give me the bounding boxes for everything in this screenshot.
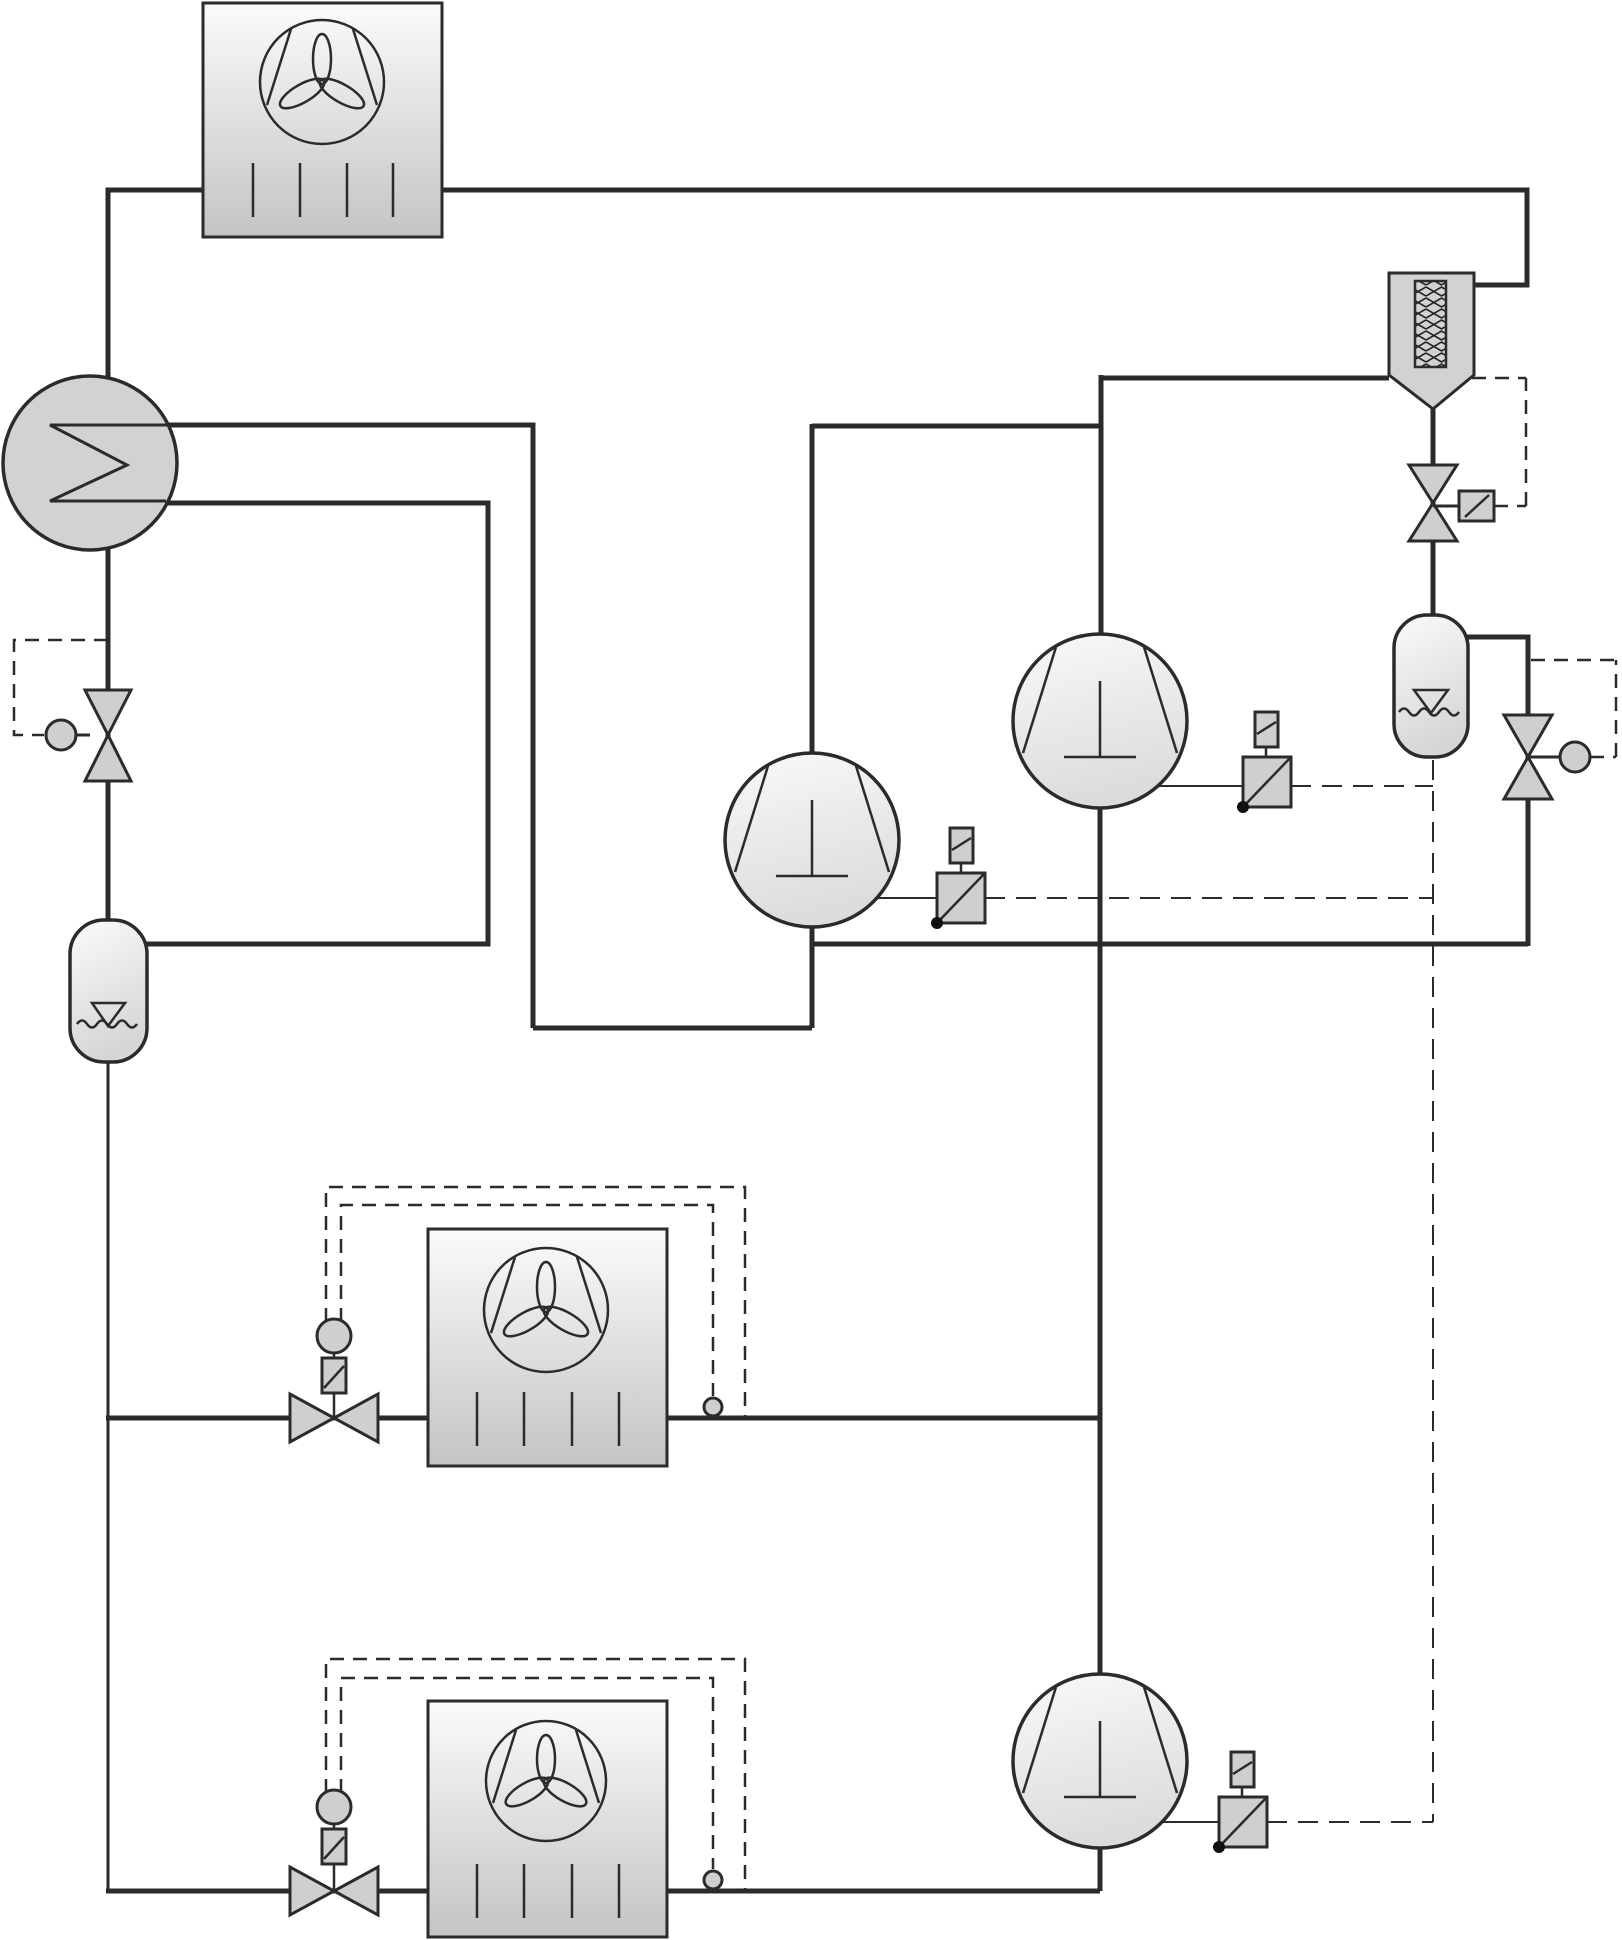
valve-body-bottom — [1409, 503, 1457, 541]
condenser-housing — [203, 3, 442, 237]
regulator-pilot — [1231, 1752, 1254, 1787]
valve-bulb-icon — [1560, 742, 1590, 772]
receiver-vessel — [70, 920, 147, 1062]
thermostatic-expansion-valve-2 — [290, 1790, 378, 1915]
expansion-valve-left — [46, 690, 131, 781]
solenoid-drain-valve — [1409, 465, 1494, 541]
condenser-unit — [203, 3, 442, 237]
regulator-dot — [1237, 801, 1249, 813]
valve-body-top — [85, 690, 131, 735]
compressor-2 — [1013, 634, 1187, 808]
valve-body-right — [334, 1394, 378, 1442]
valve-body-left — [290, 1867, 334, 1915]
oil-regulator-2 — [1237, 712, 1291, 813]
regulator-dot — [1213, 1841, 1225, 1853]
oil-separator — [1389, 273, 1474, 409]
valve-body-top — [1504, 715, 1552, 757]
valve-body-right — [334, 1867, 378, 1915]
heat-exchanger — [3, 376, 177, 550]
remote-bulb-sensor-1 — [704, 1398, 722, 1416]
control-line-separator-solenoid — [1472, 378, 1526, 506]
receiver-vessel — [1394, 615, 1468, 757]
liquid-receiver-left — [70, 920, 147, 1062]
oil-regulator-1 — [931, 828, 985, 929]
remote-bulb-sensor-2 — [704, 1871, 722, 1889]
valve-body-bottom — [1504, 757, 1552, 799]
expansion-valve-right — [1504, 715, 1590, 799]
regulator-pilot — [1255, 712, 1278, 747]
evaporator-1 — [428, 1229, 722, 1466]
control-lines — [14, 378, 1616, 1889]
evaporator-housing — [428, 1229, 667, 1466]
oil-receiver — [1394, 615, 1468, 757]
valve-body-top — [1409, 465, 1457, 503]
thermostatic-expansion-valve-1 — [290, 1319, 378, 1442]
compressor-1 — [725, 753, 899, 927]
pipe-hx-upper-run — [168, 425, 533, 1028]
pipe-hx-lower-run — [145, 503, 488, 944]
tev-bulb-icon — [317, 1319, 351, 1353]
refrigeration-diagram — [0, 0, 1622, 1940]
schematic-canvas — [0, 0, 1622, 1940]
valve-body-bottom — [85, 735, 131, 781]
pipe-network — [50, 190, 1528, 1891]
regulator-dot — [931, 917, 943, 929]
separator-coil-icon — [1415, 281, 1446, 367]
regulator-pilot — [950, 828, 973, 863]
compressor-3 — [1013, 1674, 1187, 1848]
oil-regulator-3 — [1213, 1752, 1267, 1853]
heat-exchanger-body — [3, 376, 177, 550]
valve-bulb-icon — [46, 720, 76, 750]
valve-body-left — [290, 1394, 334, 1442]
tev-bulb-icon — [317, 1790, 351, 1824]
evaporator-2 — [428, 1701, 722, 1937]
